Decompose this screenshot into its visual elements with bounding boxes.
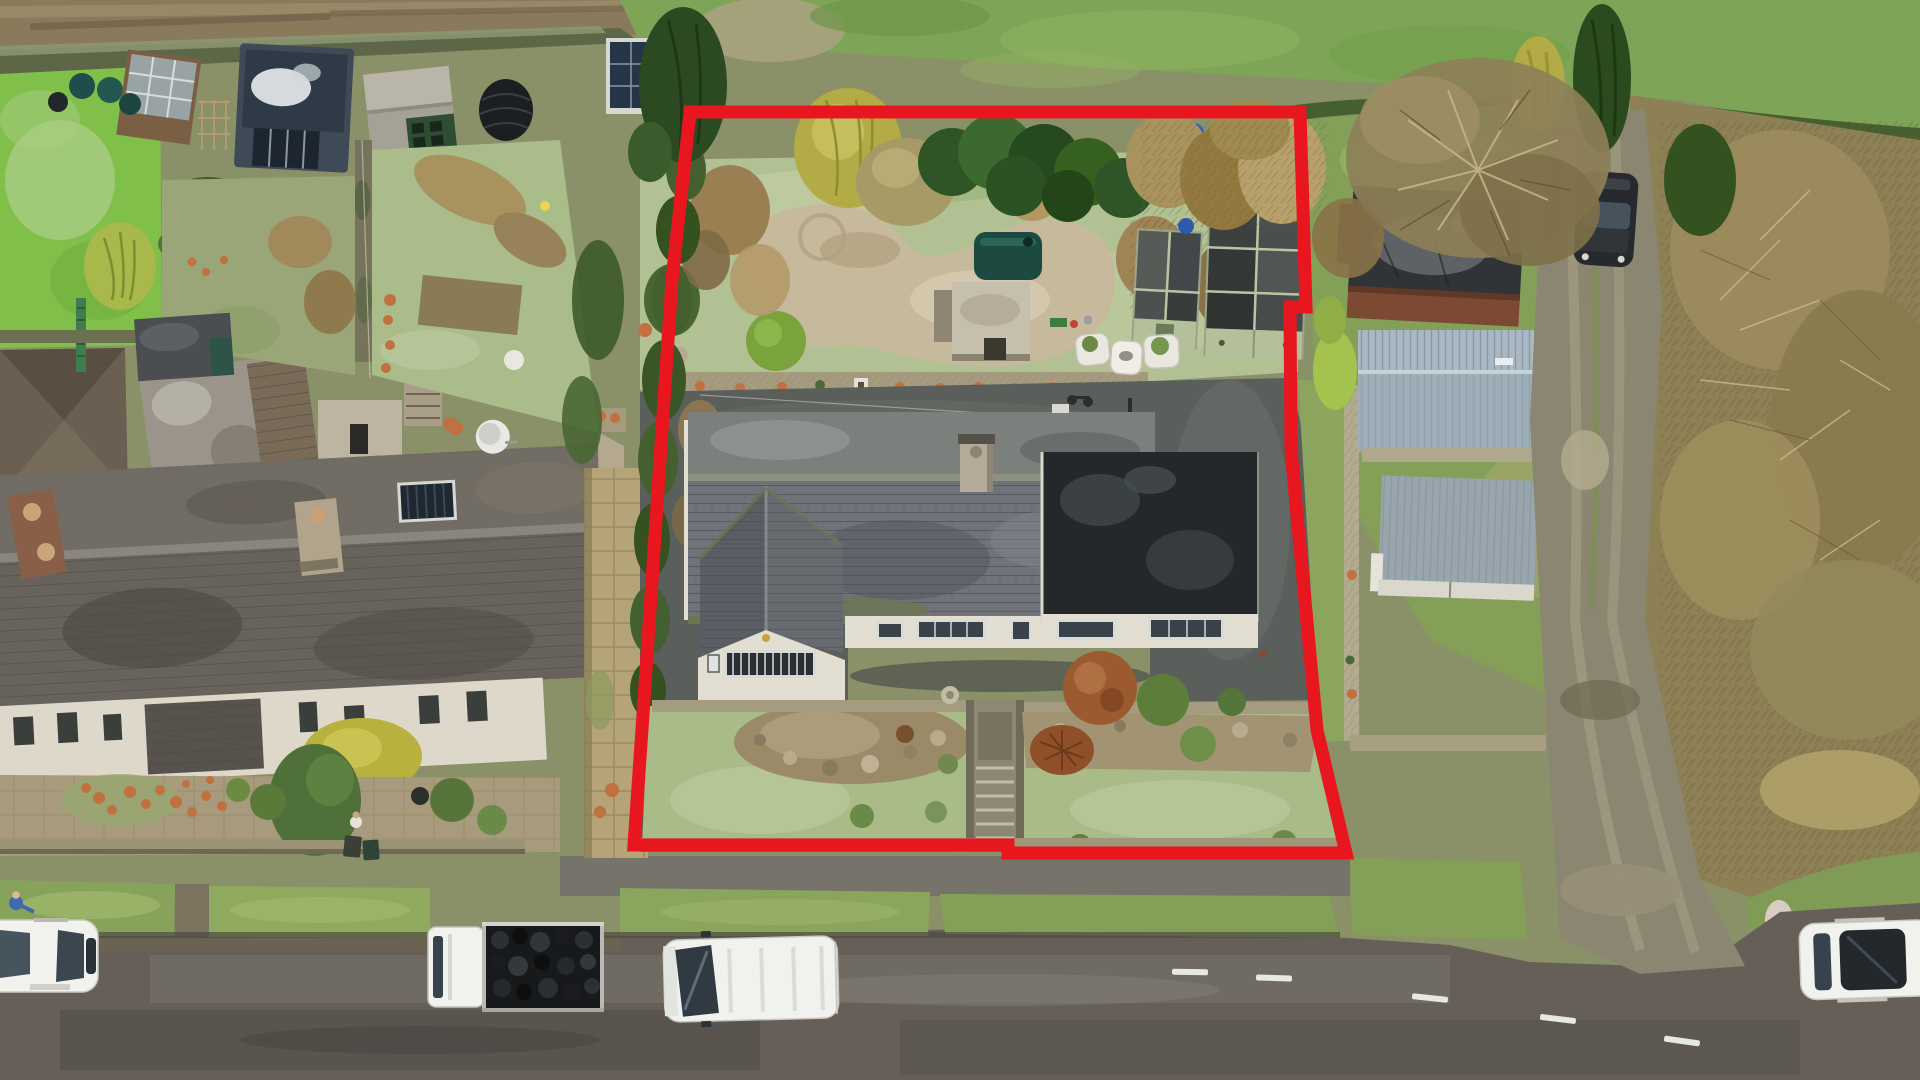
dark-roof-shed	[134, 313, 234, 382]
garden-office-cabin	[234, 43, 354, 173]
chimney-stone	[294, 498, 344, 576]
metal-shed	[1358, 330, 1538, 462]
glazed-shed-small	[1131, 228, 1203, 349]
aerial-photo	[0, 0, 1920, 1080]
green-gable-shed	[363, 66, 457, 159]
flat-roof-extension	[1042, 452, 1258, 648]
trellis	[198, 100, 230, 150]
gable-small-window	[708, 655, 719, 672]
parked-white-car	[0, 918, 98, 992]
rockery-left	[734, 700, 970, 784]
chimney	[958, 434, 995, 492]
louvre-window	[724, 650, 816, 678]
solar-panel	[397, 480, 457, 523]
oil-drum-black	[479, 79, 533, 141]
coal-truck	[428, 922, 604, 1012]
oil-tank	[974, 232, 1042, 280]
white-van	[663, 928, 839, 1029]
white-suv	[1799, 915, 1920, 1004]
yellow-flower	[540, 201, 550, 211]
gable-light	[762, 634, 770, 642]
aerial-photo-canvas	[0, 0, 1920, 1080]
small-shed	[1370, 475, 1538, 601]
